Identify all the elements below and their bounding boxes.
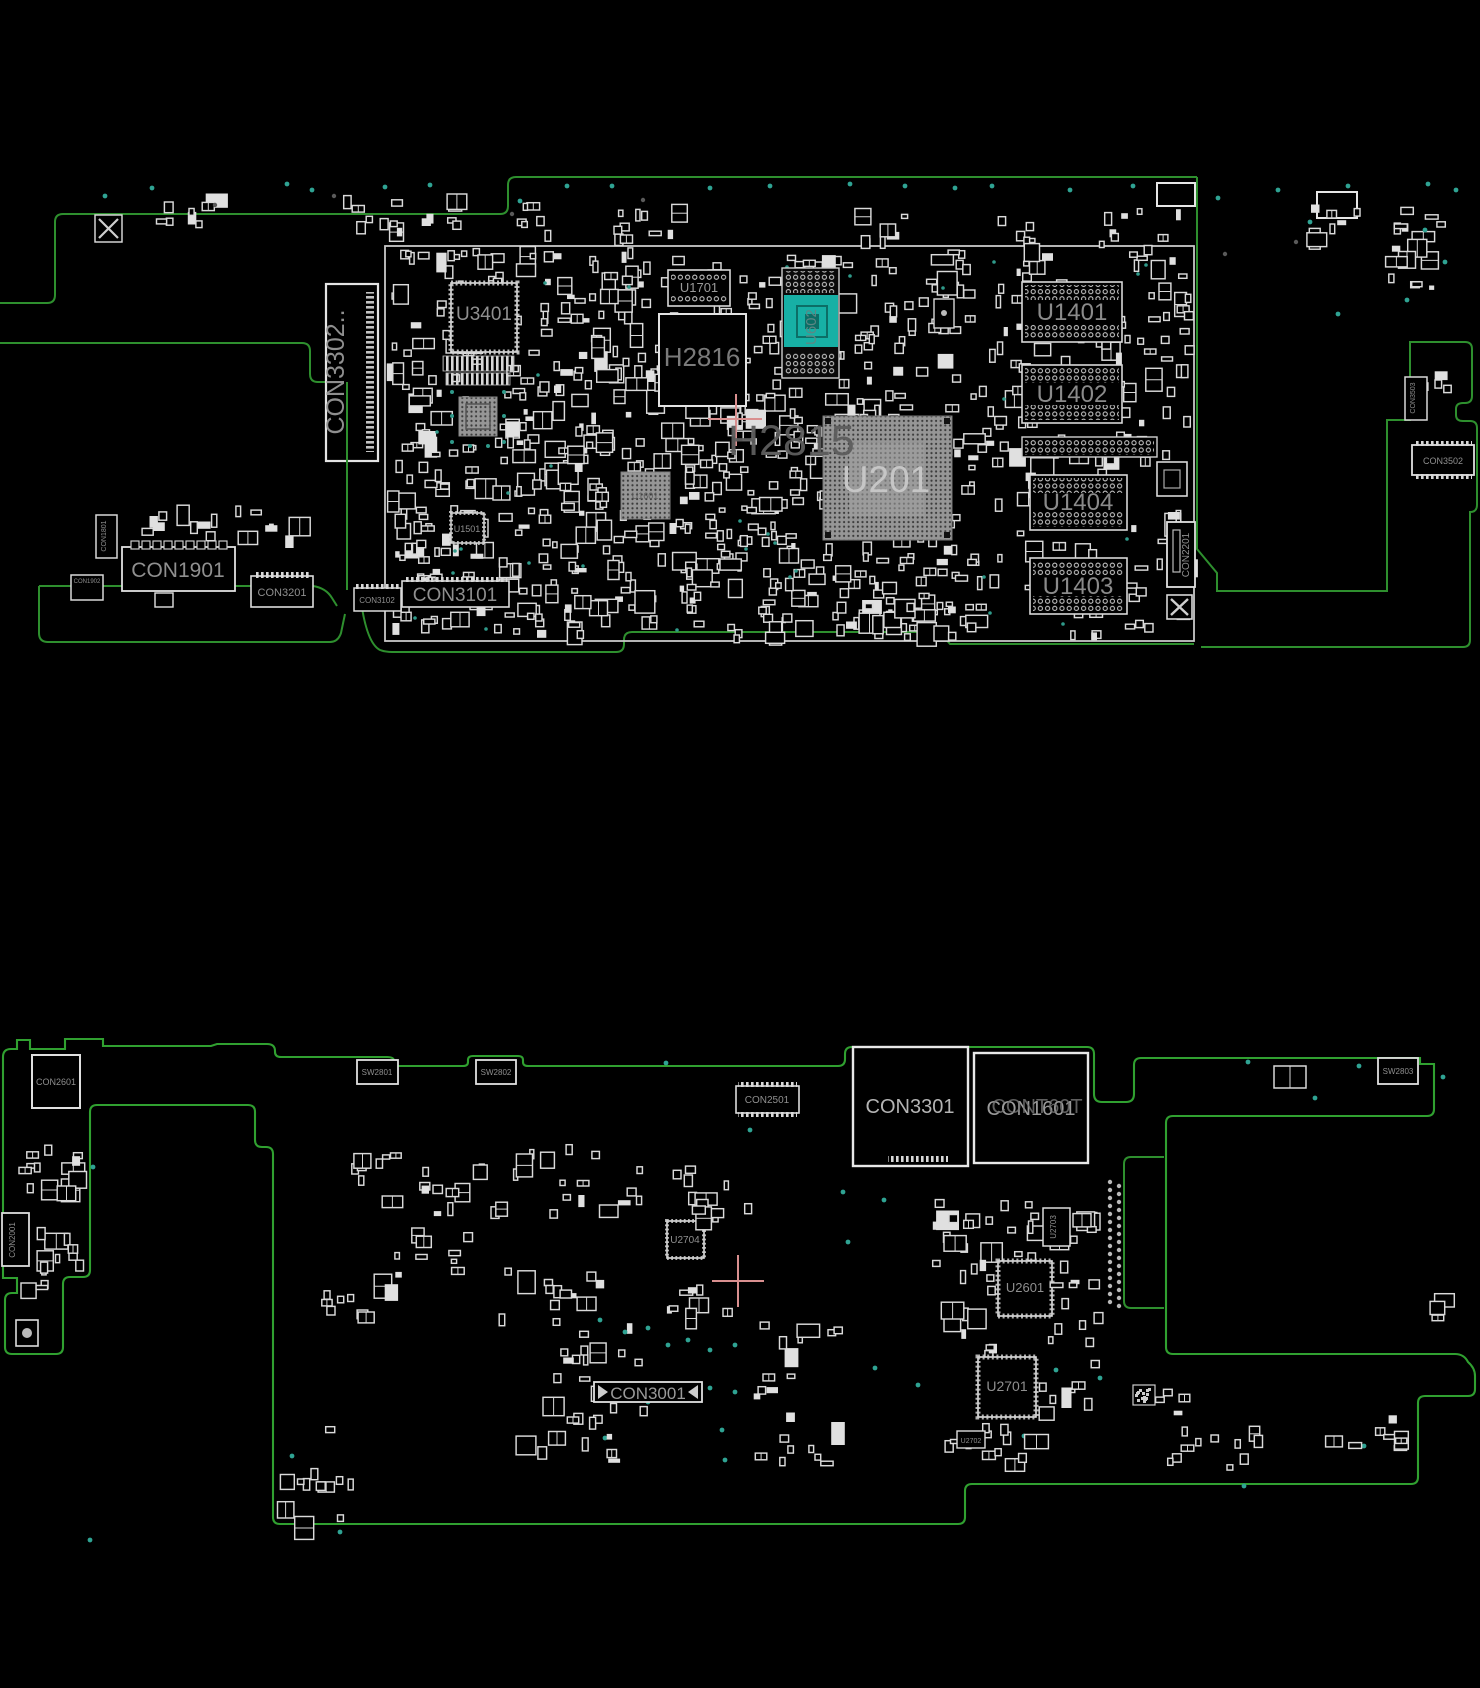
svg-text:CON3101: CON3101: [413, 585, 498, 606]
svg-text:U2703: U2703: [1049, 1215, 1058, 1239]
svg-text:SW2801: SW2801: [362, 1068, 393, 1077]
svg-text:CON3001: CON3001: [610, 1384, 686, 1403]
svg-text:U1701: U1701: [680, 280, 718, 295]
svg-text:CONT60T: CONT60T: [991, 1096, 1082, 1118]
svg-text:CON3503: CON3503: [1410, 382, 1417, 413]
svg-text:H2816: H2816: [664, 342, 741, 372]
svg-text:U2704: U2704: [670, 1235, 700, 1246]
svg-text:CON3201: CON3201: [258, 587, 307, 599]
svg-text:U2701: U2701: [986, 1378, 1027, 1394]
svg-text:SW2802: SW2802: [481, 1068, 512, 1077]
svg-text:U1402: U1402: [1037, 381, 1108, 408]
svg-text:U1404: U1404: [1043, 489, 1114, 516]
svg-text:CON2201: CON2201: [1181, 532, 1192, 577]
svg-text:U2601: U2601: [1006, 1280, 1044, 1295]
svg-text:U1401: U1401: [1037, 299, 1108, 326]
svg-text:CON2501: CON2501: [745, 1095, 790, 1106]
svg-text:U2702: U2702: [961, 1438, 982, 1445]
svg-text:U201: U201: [842, 459, 930, 500]
svg-text:CON3302..: CON3302..: [322, 309, 350, 434]
svg-text:U602: U602: [803, 309, 820, 345]
svg-text:CON1801: CON1801: [101, 520, 108, 551]
svg-text:CON3301: CON3301: [866, 1096, 955, 1118]
svg-text:U1601: U1601: [632, 491, 659, 501]
svg-text:H2815: H2815: [728, 417, 855, 465]
svg-text:U1501: U1501: [454, 524, 481, 534]
svg-text:CON1902: CON1902: [74, 579, 101, 585]
svg-text:U3401: U3401: [456, 304, 512, 325]
svg-text:CON2001: CON2001: [8, 1222, 17, 1258]
svg-text:CON1901: CON1901: [131, 559, 224, 582]
svg-text:U1403: U1403: [1043, 573, 1114, 600]
svg-text:CON3502: CON3502: [1423, 456, 1463, 466]
svg-text:SW2803: SW2803: [1383, 1067, 1414, 1076]
svg-text:CON2601: CON2601: [36, 1077, 76, 1087]
svg-text:CON3102: CON3102: [359, 596, 395, 605]
